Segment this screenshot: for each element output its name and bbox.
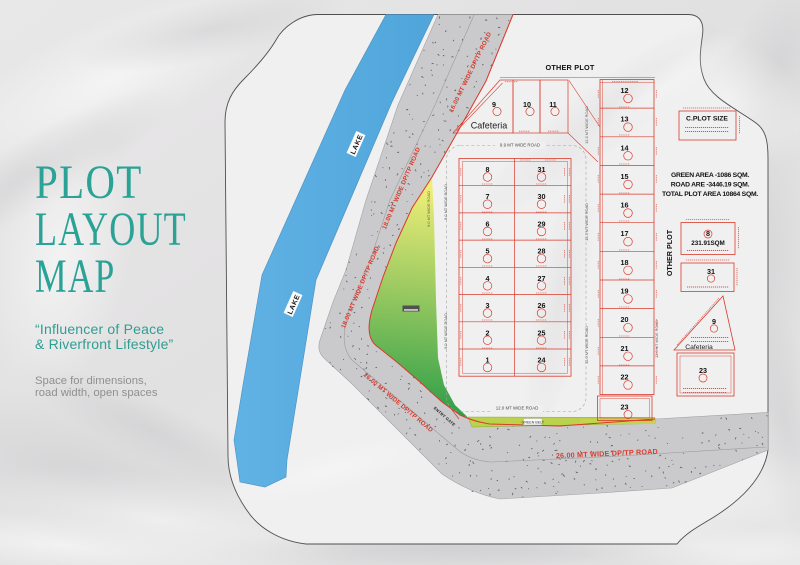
svg-text:22: 22	[621, 372, 629, 381]
svg-text:12.0 MT WIDE ROAD: 12.0 MT WIDE ROAD	[584, 326, 589, 364]
svg-text:TOTAL PLOT AREA 10864 SQM.: TOTAL PLOT AREA 10864 SQM.	[662, 191, 758, 198]
svg-text:19: 19	[621, 286, 629, 295]
svg-text:16: 16	[621, 201, 629, 210]
svg-text:Cafeteria: Cafeteria	[471, 121, 508, 131]
svg-text:15: 15	[621, 172, 629, 181]
svg-text:GREEN AREA -1086 SQM.: GREEN AREA -1086 SQM.	[671, 172, 749, 179]
svg-text:9.0 MT WIDE ROAD: 9.0 MT WIDE ROAD	[443, 313, 448, 349]
svg-text:20: 20	[621, 315, 629, 324]
svg-text:Cafeteria: Cafeteria	[685, 344, 713, 351]
svg-text:14: 14	[621, 143, 629, 152]
svg-text:12.3 MT WIDE ROAD: 12.3 MT WIDE ROAD	[584, 203, 589, 241]
svg-text:9.0 MT WIDE ROAD: 9.0 MT WIDE ROAD	[426, 191, 431, 227]
svg-text:23: 23	[699, 366, 707, 375]
svg-text:21: 21	[621, 344, 629, 353]
svg-text:12: 12	[621, 86, 629, 95]
svg-text:C.PLOT SIZE: C.PLOT SIZE	[686, 116, 728, 123]
svg-text:GREEN BELT: GREEN BELT	[522, 421, 545, 425]
svg-text:231.91SQM: 231.91SQM	[691, 240, 725, 247]
svg-text:12.0 MT WIDE ROAD: 12.0 MT WIDE ROAD	[654, 320, 659, 358]
svg-text:23: 23	[621, 403, 629, 412]
svg-text:13: 13	[621, 115, 629, 124]
svg-text:17: 17	[621, 229, 629, 238]
svg-text:12.3 MT WIDE ROAD: 12.3 MT WIDE ROAD	[584, 106, 589, 144]
svg-text:8: 8	[706, 229, 710, 238]
svg-text:ROAD ARE -3446.19 SQM.: ROAD ARE -3446.19 SQM.	[671, 182, 750, 189]
svg-text:OTHER PLOT: OTHER PLOT	[545, 63, 594, 72]
svg-text:18: 18	[621, 258, 629, 267]
svg-text:12.0 MT WIDE ROAD: 12.0 MT WIDE ROAD	[496, 406, 539, 411]
svg-text:OTHER PLOT: OTHER PLOT	[665, 229, 674, 276]
svg-text:9.0 MT WIDE ROAD: 9.0 MT WIDE ROAD	[443, 184, 448, 220]
svg-text:9.9 MT WIDE ROAD: 9.9 MT WIDE ROAD	[500, 143, 540, 148]
